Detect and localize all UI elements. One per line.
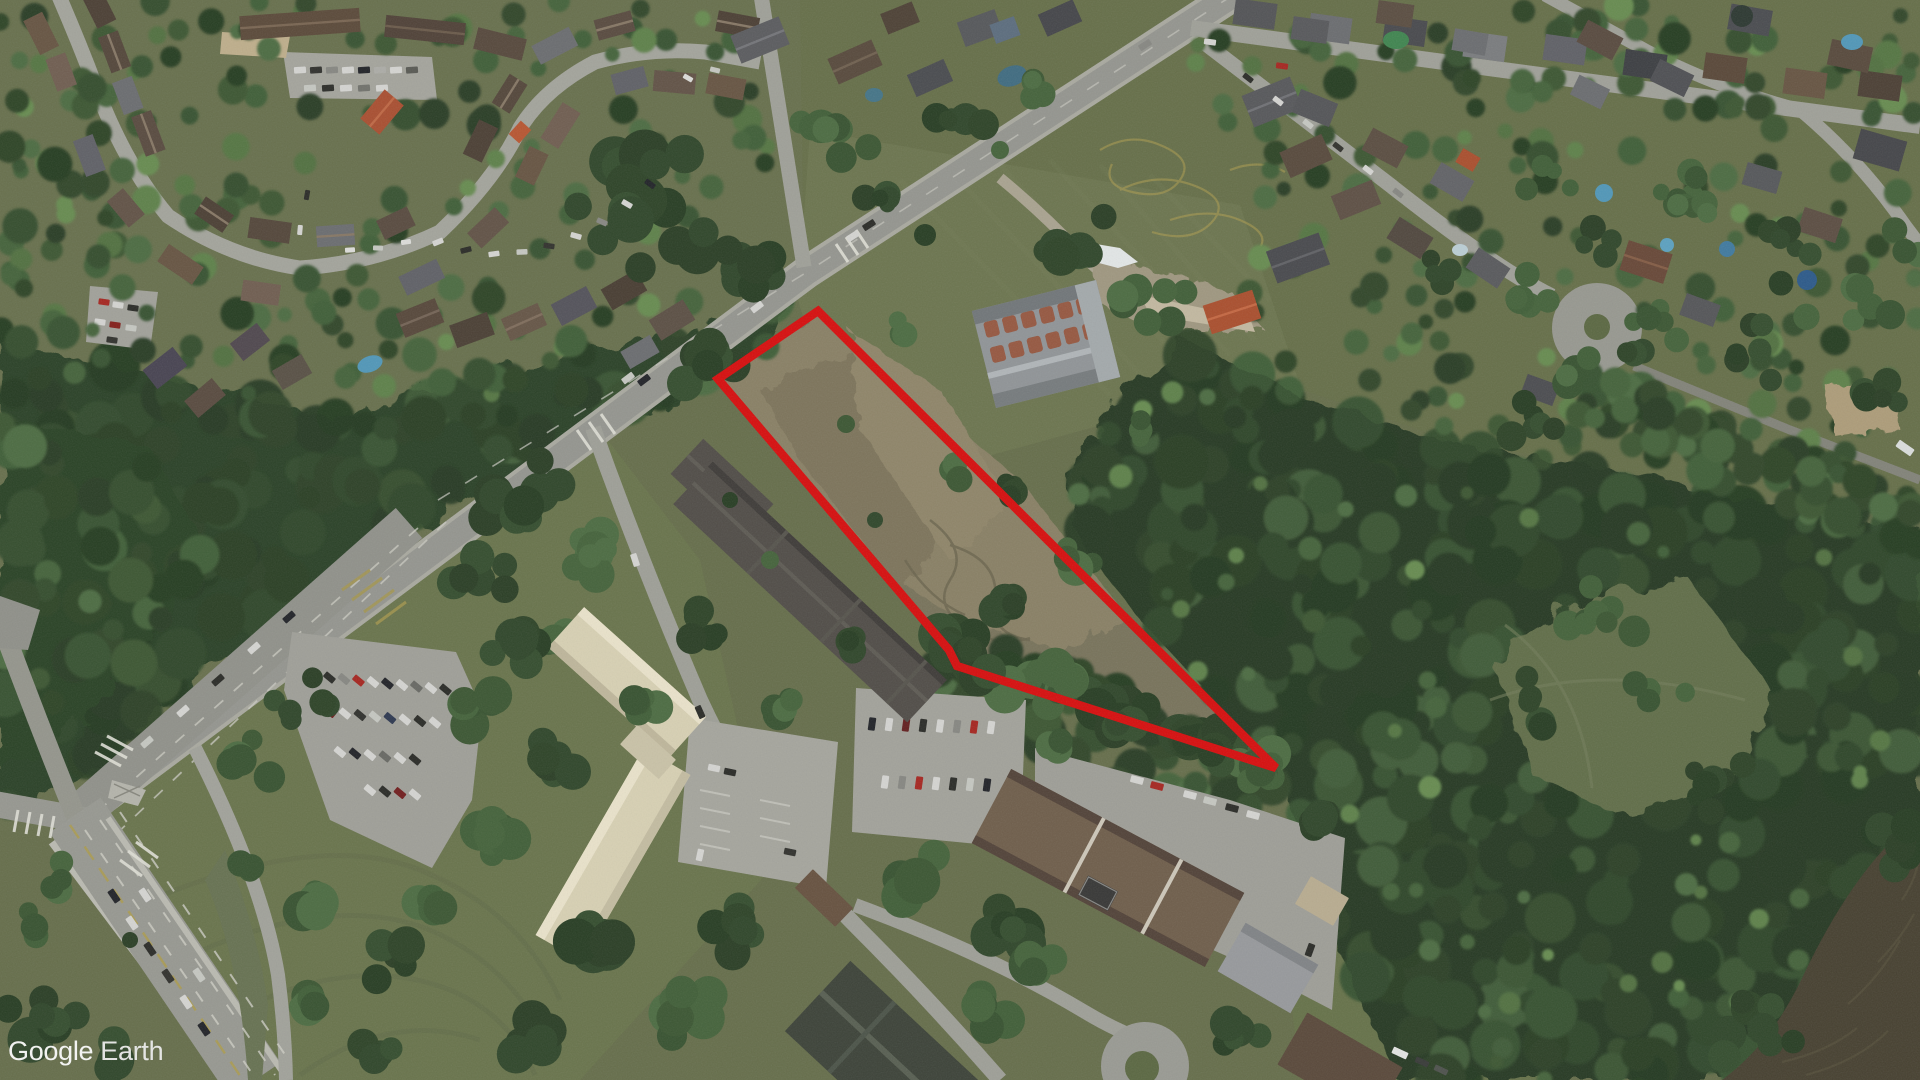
svg-text:GoogleEarth: GoogleEarth	[8, 1036, 163, 1066]
